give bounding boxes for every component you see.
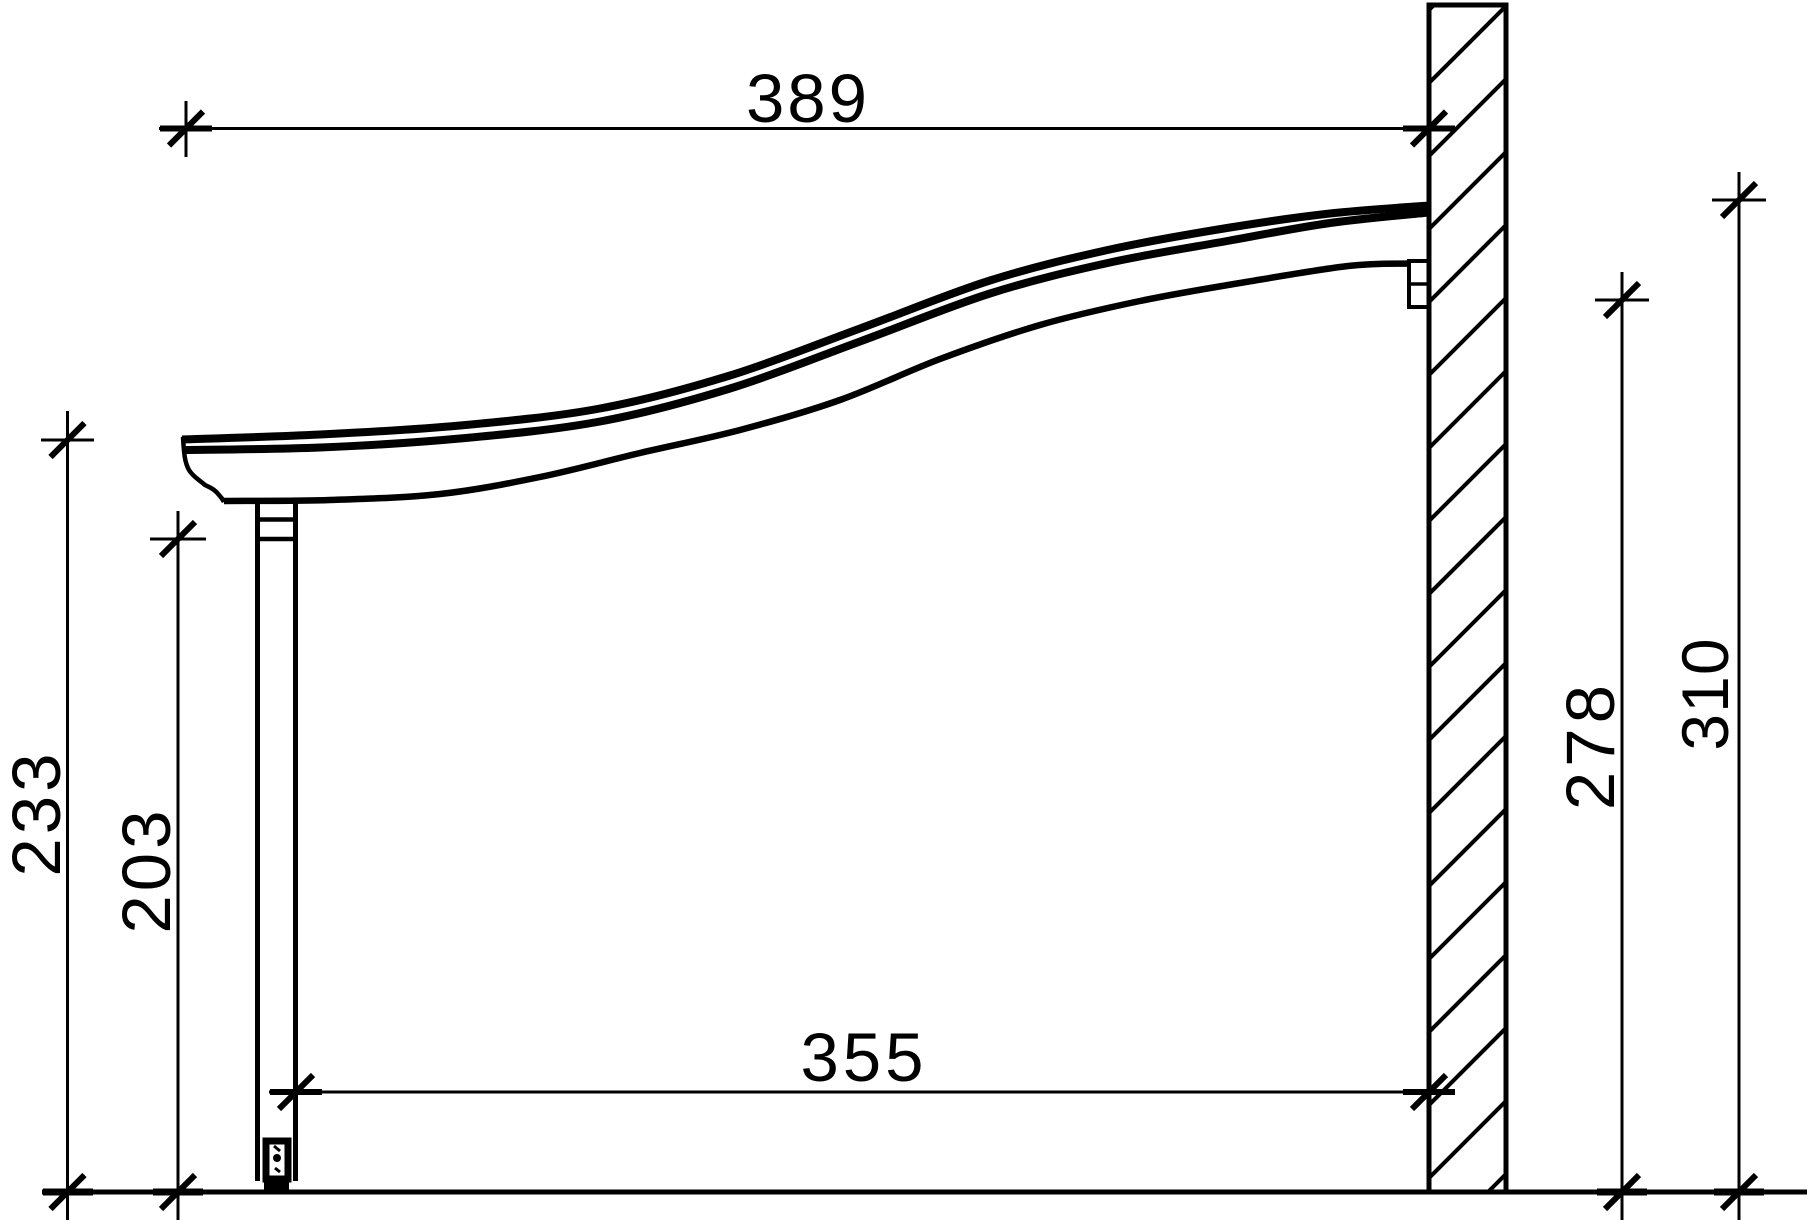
svg-text:355: 355: [800, 1019, 927, 1096]
svg-text:233: 233: [0, 749, 75, 876]
svg-text:310: 310: [1668, 637, 1742, 750]
svg-text:278: 278: [1552, 680, 1629, 810]
svg-text:203: 203: [108, 806, 185, 933]
svg-text:389: 389: [746, 60, 870, 137]
